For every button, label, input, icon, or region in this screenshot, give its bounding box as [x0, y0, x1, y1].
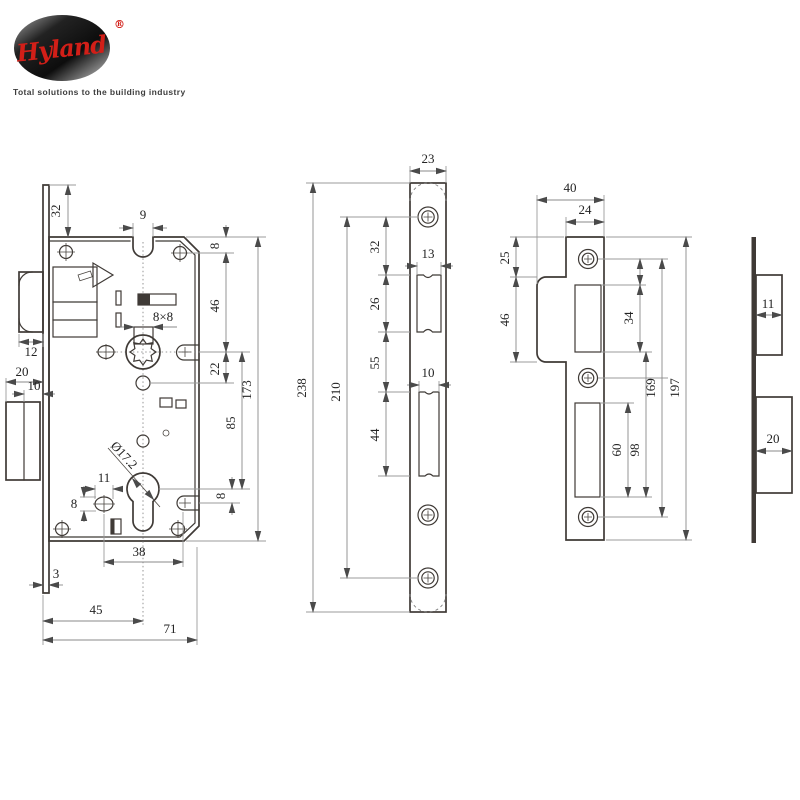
svg-text:8: 8	[207, 243, 222, 250]
technical-drawing-page: Hyland ® Total solutions to the building…	[0, 0, 800, 800]
screw-post-holes	[53, 243, 189, 538]
latch-lever	[78, 271, 92, 281]
faceplate-view: 23 238 210 32 26 55 44	[294, 151, 453, 612]
faceplate-edge-strip	[43, 185, 49, 593]
faceplate-screw-holes	[418, 207, 438, 588]
dim-strike-right-chains: 34 60 98 169 197	[598, 237, 692, 540]
dim-oval-hole: 11 8	[71, 470, 123, 522]
svg-text:197: 197	[667, 378, 682, 398]
svg-text:25: 25	[497, 252, 512, 265]
dim-deadbolt-width: 20 10	[6, 364, 55, 402]
dim-spindle-square: 8×8	[120, 309, 177, 327]
dim-faceplate-chain: 32 26 55 44	[367, 217, 410, 476]
svg-text:46: 46	[497, 313, 512, 327]
svg-text:238: 238	[294, 378, 309, 398]
lock-technical-drawing: Hyland ® Total solutions to the building…	[0, 0, 800, 800]
logo: Hyland ® Total solutions to the building…	[13, 15, 186, 97]
small-hole	[137, 435, 149, 447]
svg-text:8: 8	[71, 496, 78, 511]
svg-text:32: 32	[367, 241, 382, 254]
svg-text:9: 9	[140, 207, 147, 222]
svg-text:8×8: 8×8	[153, 309, 173, 324]
logo-tagline: Total solutions to the building industry	[13, 87, 186, 97]
svg-text:98: 98	[627, 444, 642, 457]
svg-text:12: 12	[25, 344, 38, 359]
svg-text:34: 34	[621, 311, 636, 325]
svg-text:24: 24	[579, 202, 593, 217]
euro-cylinder-hole	[127, 473, 159, 531]
svg-text:13: 13	[422, 246, 435, 261]
dim-faceplate-height: 238 210	[294, 183, 419, 612]
strike-screw-holes	[579, 250, 598, 527]
faceplate-rounded-end-top	[410, 183, 446, 201]
dim-latch-width: 12	[19, 334, 43, 359]
svg-text:11: 11	[98, 470, 111, 485]
dim-latch-box-depth: 11	[756, 296, 782, 315]
dim-right-chain: 8 46 22 85 8 173	[150, 225, 266, 541]
svg-text:173: 173	[239, 380, 254, 400]
svg-text:11: 11	[762, 296, 775, 311]
strike-plate-outline	[537, 237, 604, 540]
svg-text:10: 10	[422, 365, 435, 380]
svg-text:169: 169	[643, 378, 658, 398]
svg-text:40: 40	[564, 180, 577, 195]
svg-text:10: 10	[28, 378, 41, 393]
right-slot-upper	[177, 345, 199, 360]
dim-cylinder-diameter: Ø17.2	[108, 438, 160, 507]
latch-bolt	[19, 263, 113, 337]
stop-slide-filled	[138, 294, 150, 305]
dim-faceplate-width: 23	[410, 151, 446, 183]
svg-text:45: 45	[90, 602, 103, 617]
svg-text:22: 22	[207, 363, 222, 376]
strike-latch-opening	[575, 285, 601, 352]
svg-text:46: 46	[207, 299, 222, 313]
faceplate-deadbolt-opening	[419, 392, 439, 476]
dim-faceplate-thickness: 3	[29, 566, 63, 585]
svg-text:32: 32	[48, 205, 63, 218]
svg-text:210: 210	[328, 382, 343, 402]
faceplate-rounded-end-bottom	[410, 594, 446, 612]
svg-text:38: 38	[133, 544, 146, 559]
svg-text:71: 71	[164, 621, 177, 636]
faceplate-latch-opening	[417, 275, 441, 332]
svg-text:20: 20	[767, 431, 780, 446]
dim-strike-widths: 40 24	[537, 180, 604, 284]
svg-text:8: 8	[213, 493, 228, 500]
dim-faceplate-top-offset: 32	[48, 185, 76, 237]
pin-hole	[163, 430, 169, 436]
dim-deadbolt-box-depth: 20	[756, 431, 792, 451]
svg-text:60: 60	[609, 444, 624, 457]
svg-text:26: 26	[367, 297, 382, 311]
svg-text:20: 20	[16, 364, 29, 379]
svg-text:55: 55	[367, 357, 382, 370]
deadbolt	[6, 402, 40, 480]
svg-text:3: 3	[53, 566, 60, 581]
svg-text:85: 85	[223, 417, 238, 430]
svg-text:44: 44	[367, 428, 382, 442]
dim-deadbolt-opening-width: 10	[407, 365, 451, 392]
svg-text:23: 23	[422, 151, 435, 166]
strike-side-view: 11 20	[752, 237, 793, 543]
lock-body-view: 32 9 8 46 22 85	[6, 185, 266, 645]
lock-case-inner-edge	[49, 241, 195, 537]
strike-plate-view: 40 24 25 46 34	[497, 180, 692, 540]
dim-oval-to-slot: 38	[104, 512, 183, 567]
logo-registered-mark: ®	[114, 18, 125, 31]
dim-strike-flange: 25 46	[497, 237, 564, 362]
strike-deadbolt-opening	[575, 403, 600, 497]
dim-notch-width: 9	[119, 207, 167, 237]
